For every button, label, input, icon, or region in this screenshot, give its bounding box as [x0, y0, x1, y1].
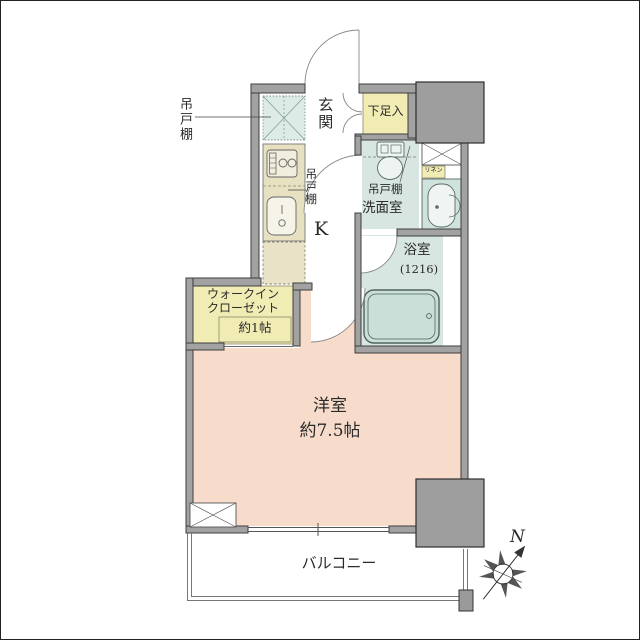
label-washroom: 洗面室 — [362, 201, 403, 217]
label-bathroom-size: (1216) — [391, 263, 447, 276]
label-wic-line1: ウォークイン — [195, 288, 291, 302]
label-bathroom: 浴室 — [391, 243, 443, 259]
label-kitchen: K — [314, 219, 328, 241]
label-linen: リネン — [422, 168, 445, 175]
shoe-cabinet-door-swing — [343, 93, 362, 133]
label-western-room: 洋室 — [290, 397, 370, 417]
label-western-room-size: 約7.5帖 — [280, 422, 380, 442]
stove-icon — [267, 150, 297, 177]
floorplan: 吊戸棚 玄関 下足入 吊戸棚 K 吊戸棚 洗面室 リネン 浴室 (1216) ウ… — [0, 0, 640, 640]
label-wic-size: 約1帖 — [219, 321, 291, 335]
entrance-door-swing — [305, 30, 359, 85]
refrigerator-space — [263, 242, 305, 284]
label-hanging-cabinet-washroom: 吊戸棚 — [368, 183, 403, 196]
corner-hatch-box — [190, 503, 236, 527]
label-wic-line2: クローゼット — [195, 302, 291, 316]
label-entrance: 玄関 — [316, 97, 333, 131]
sink-icon — [267, 197, 296, 235]
compass-north-label: N — [510, 528, 525, 548]
toilet-icon — [377, 142, 404, 180]
overhead-cabinet-hatch — [263, 96, 305, 140]
pipe-space-hatch — [422, 143, 462, 165]
label-shoe-cabinet: 下足入 — [363, 105, 408, 119]
label-balcony: バルコニー — [284, 555, 394, 572]
bathtub-icon — [364, 290, 439, 343]
balcony-drain — [459, 590, 473, 611]
label-hanging-cabinet-left: 吊戸棚 — [176, 97, 191, 142]
label-hanging-cabinet-kitchen: 吊戸棚 — [304, 168, 317, 206]
washbasin-icon — [422, 179, 461, 231]
